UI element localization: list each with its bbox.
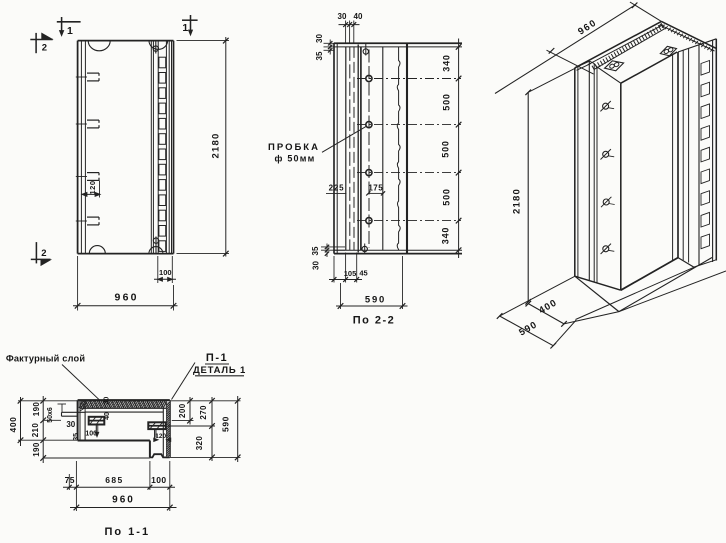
svg-text:2180: 2180 bbox=[211, 133, 222, 159]
svg-text:35: 35 bbox=[311, 246, 320, 255]
svg-text:400: 400 bbox=[8, 417, 18, 433]
svg-text:45: 45 bbox=[359, 268, 367, 277]
svg-text:175: 175 bbox=[368, 184, 383, 193]
svg-text:120: 120 bbox=[88, 180, 97, 194]
svg-text:ДЕТАЛЬ 1: ДЕТАЛЬ 1 bbox=[193, 365, 246, 376]
svg-text:500: 500 bbox=[441, 188, 451, 205]
svg-text:340: 340 bbox=[441, 227, 451, 244]
svg-text:По 1-1: По 1-1 bbox=[105, 526, 151, 538]
svg-text:П-1: П-1 bbox=[206, 352, 228, 364]
svg-text:35: 35 bbox=[315, 51, 324, 60]
svg-text:30: 30 bbox=[315, 34, 324, 43]
svg-text:Фактурный слой: Фактурный слой bbox=[6, 354, 86, 364]
svg-text:2: 2 bbox=[42, 43, 48, 54]
svg-text:105: 105 bbox=[344, 269, 357, 278]
svg-text:40: 40 bbox=[104, 412, 111, 420]
svg-text:ПРОБКА: ПРОБКА bbox=[268, 142, 320, 153]
svg-text:2: 2 bbox=[41, 248, 47, 259]
svg-text:500: 500 bbox=[441, 140, 451, 157]
svg-text:2180: 2180 bbox=[512, 188, 523, 214]
svg-text:100: 100 bbox=[159, 268, 172, 277]
svg-text:35: 35 bbox=[73, 433, 80, 441]
svg-text:270: 270 bbox=[199, 405, 208, 420]
svg-text:190: 190 bbox=[32, 442, 41, 457]
svg-text:960: 960 bbox=[115, 292, 139, 304]
svg-text:960: 960 bbox=[112, 494, 135, 505]
svg-text:30: 30 bbox=[338, 12, 347, 21]
svg-text:По 2-2: По 2-2 bbox=[353, 315, 396, 327]
svg-text:500: 500 bbox=[441, 93, 451, 110]
svg-text:200: 200 bbox=[178, 403, 187, 418]
svg-text:40: 40 bbox=[354, 12, 363, 21]
svg-text:120: 120 bbox=[155, 433, 166, 440]
svg-text:320: 320 bbox=[195, 436, 204, 451]
svg-text:100: 100 bbox=[85, 430, 97, 437]
svg-text:685: 685 bbox=[105, 475, 123, 485]
svg-text:190: 190 bbox=[32, 402, 41, 417]
svg-text:210: 210 bbox=[31, 423, 40, 438]
svg-text:590: 590 bbox=[220, 416, 230, 432]
svg-text:30: 30 bbox=[312, 261, 321, 270]
svg-text:30: 30 bbox=[66, 420, 75, 429]
svg-text:50х6: 50х6 bbox=[47, 407, 54, 423]
svg-text:30: 30 bbox=[103, 397, 110, 405]
svg-text:100: 100 bbox=[151, 475, 166, 485]
svg-text:1: 1 bbox=[182, 22, 188, 34]
svg-text:590: 590 bbox=[365, 295, 386, 306]
svg-text:225: 225 bbox=[329, 183, 345, 192]
svg-text:ф 50мм: ф 50мм bbox=[275, 153, 316, 163]
svg-text:340: 340 bbox=[441, 54, 451, 71]
svg-text:75: 75 bbox=[65, 475, 75, 485]
svg-text:1: 1 bbox=[67, 25, 73, 37]
